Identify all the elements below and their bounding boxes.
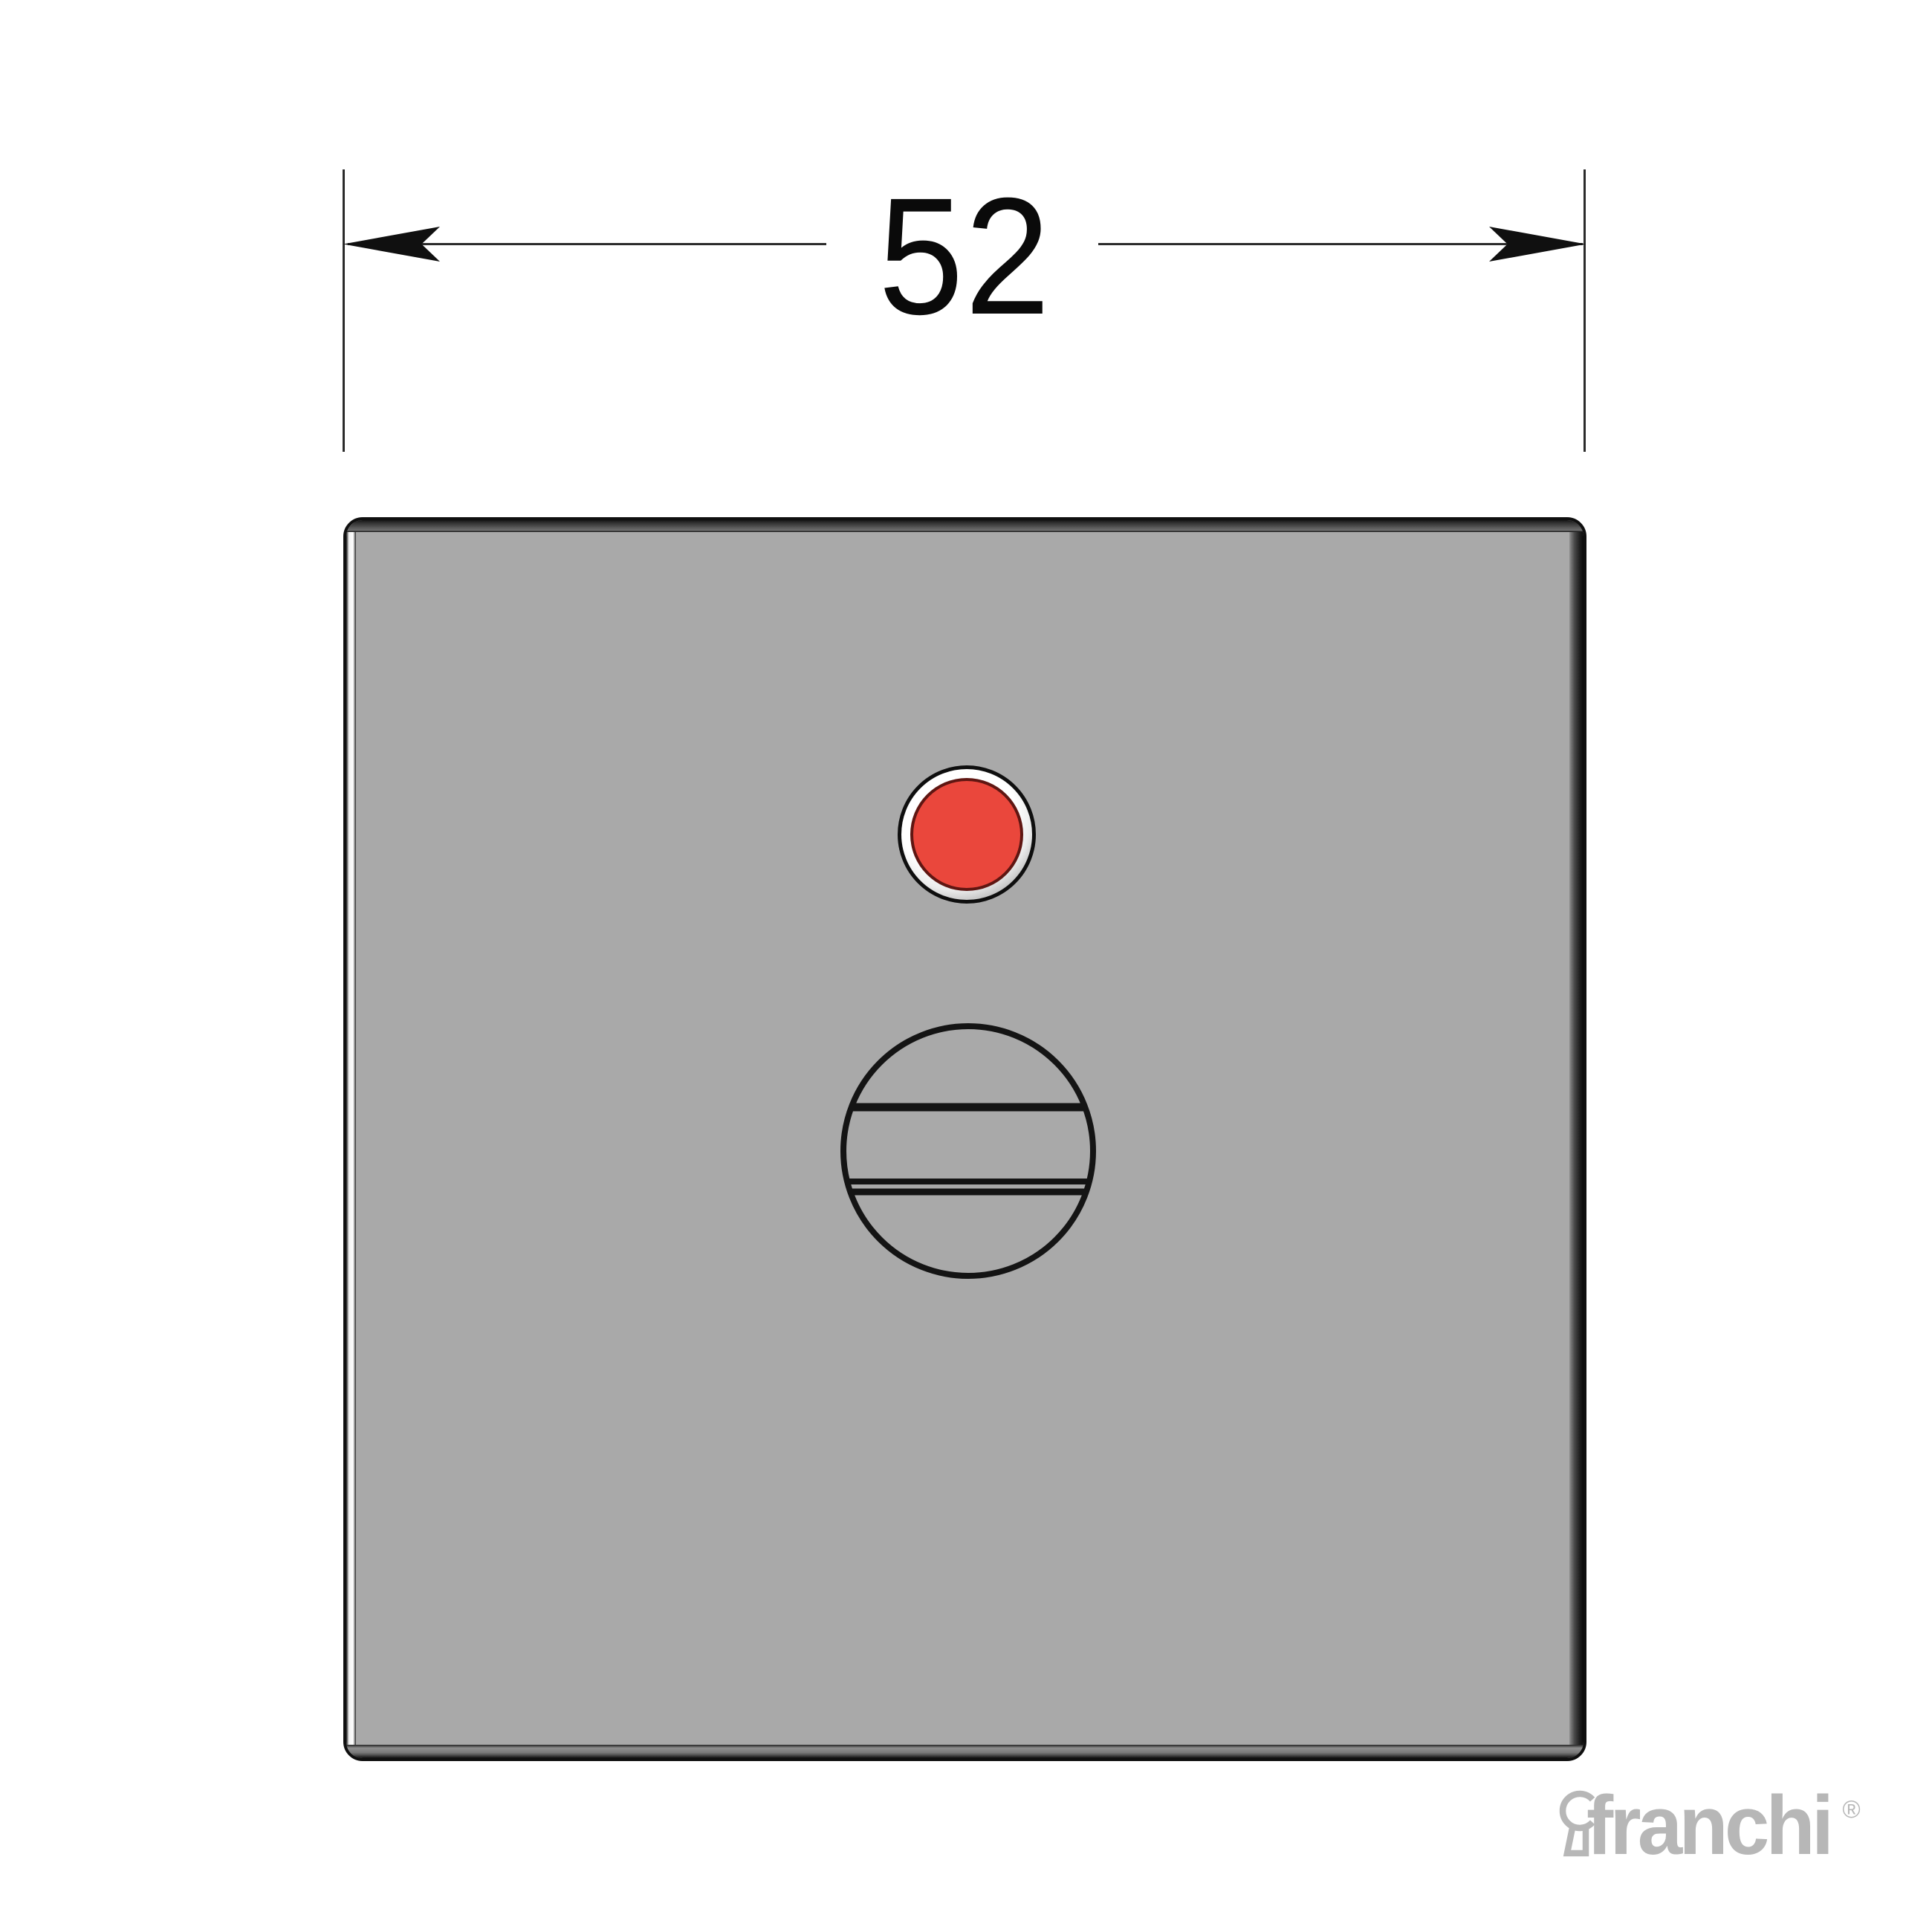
dimension-value: 52 bbox=[393, 173, 1537, 340]
registered-mark-icon: ® bbox=[1842, 1797, 1860, 1821]
technical-drawing-canvas: 52 franchi ® bbox=[0, 0, 1932, 1932]
plate-bevel-bottom bbox=[346, 1745, 1583, 1758]
brand-name: franchi bbox=[1586, 1790, 1830, 1861]
plate-bevel-right bbox=[1569, 520, 1583, 1758]
extension-line-left bbox=[343, 169, 345, 452]
brand-logo: franchi ® bbox=[1556, 1789, 1861, 1861]
occupancy-indicator-window bbox=[898, 765, 1036, 904]
indicator-plate bbox=[343, 517, 1586, 1761]
plate-bevel-left bbox=[346, 520, 356, 1758]
extension-line-right bbox=[1583, 169, 1586, 452]
plate-bevel-top bbox=[346, 520, 1583, 532]
coin-turn-release-icon bbox=[820, 1002, 1117, 1300]
red-indicator-lens bbox=[910, 778, 1023, 891]
